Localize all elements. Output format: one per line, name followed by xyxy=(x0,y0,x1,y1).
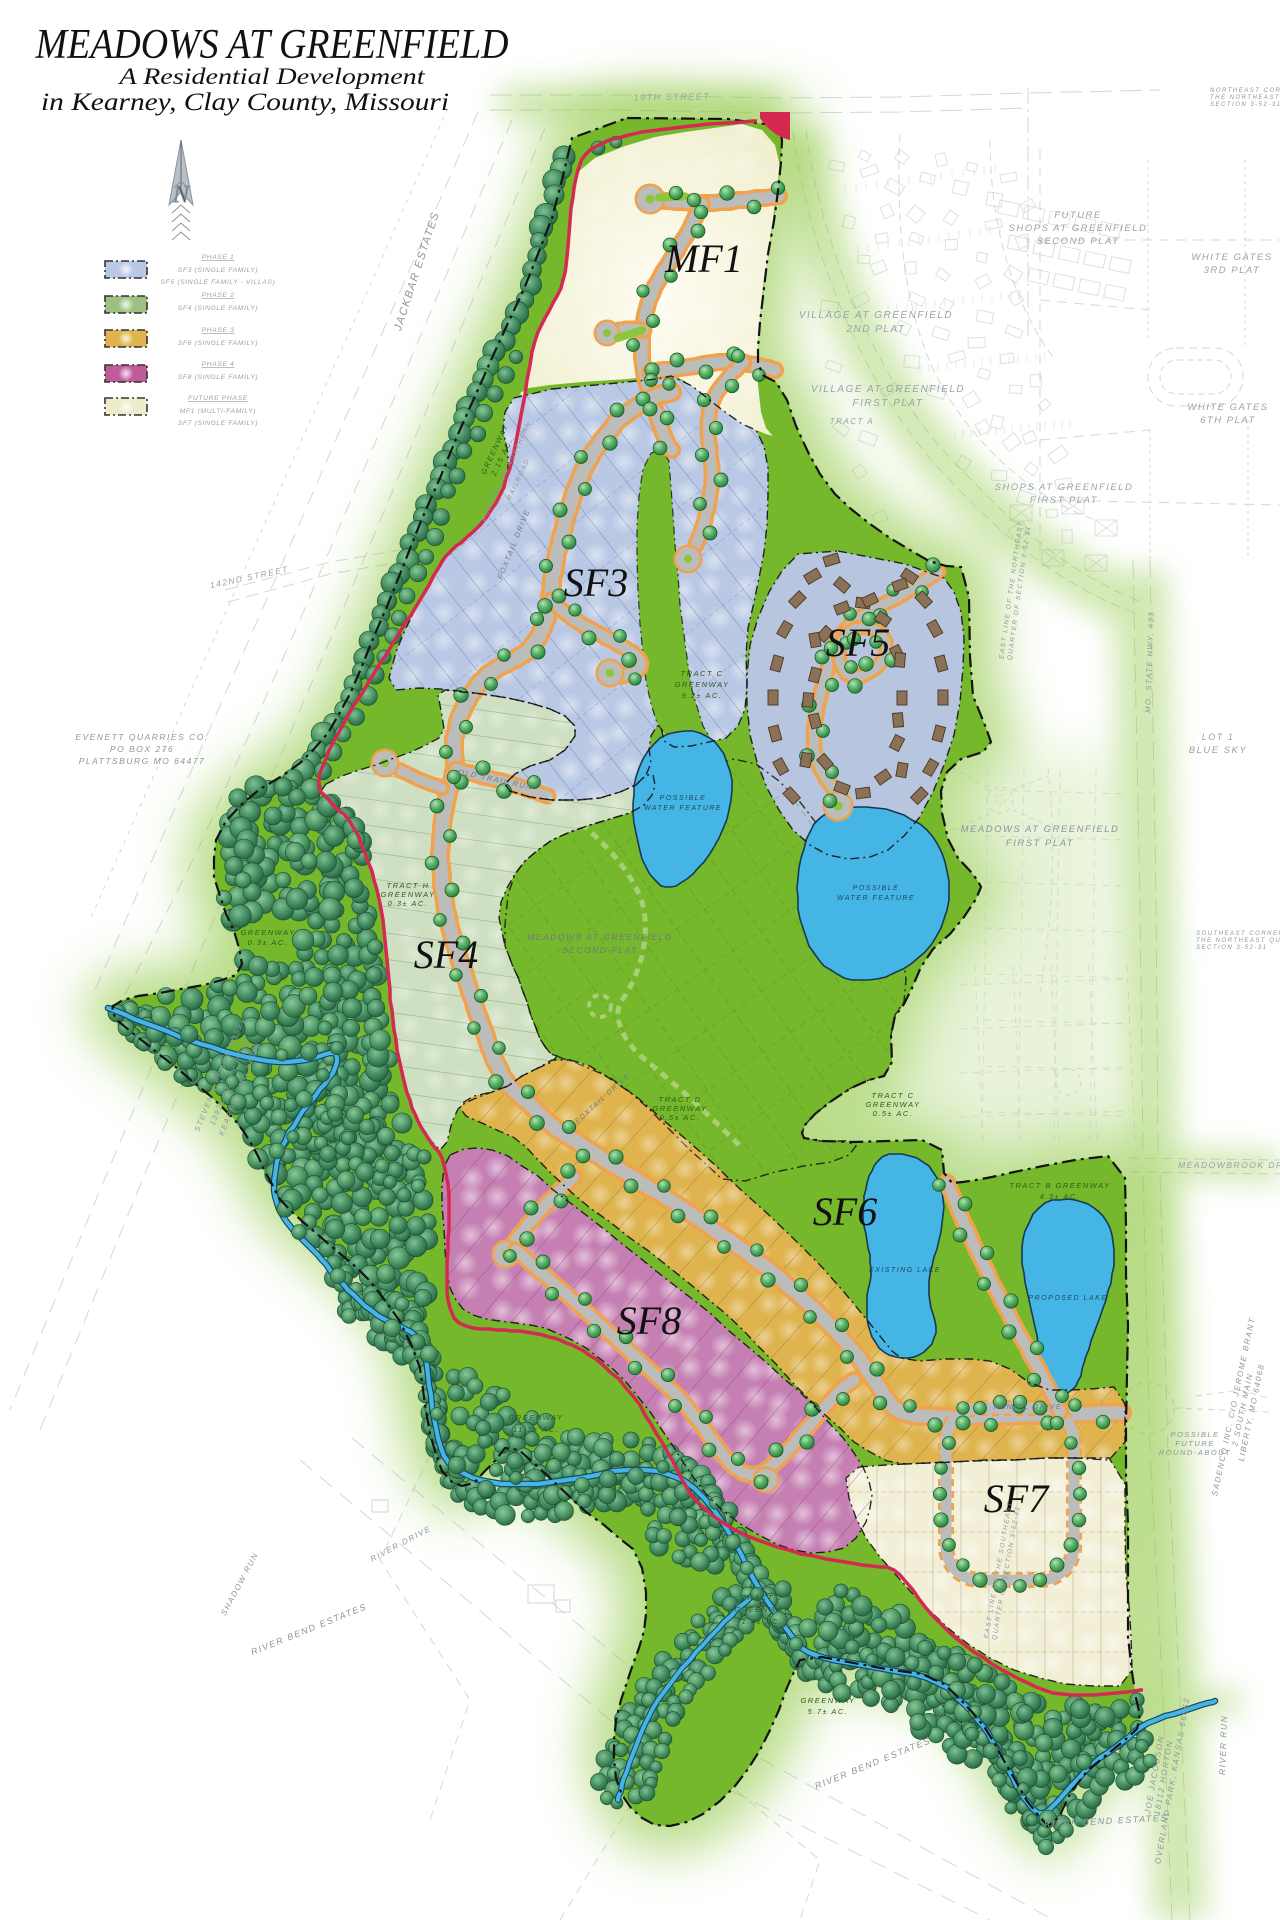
svg-text:EXISTING LAKE: EXISTING LAKE xyxy=(869,1267,941,1274)
svg-text:19TH STREET: 19TH STREET xyxy=(634,91,711,102)
svg-text:SF5 (SINGLE FAMILY - VILLAS): SF5 (SINGLE FAMILY - VILLAS) xyxy=(161,279,276,286)
svg-text:PLATTSBURG MO 64477: PLATTSBURG MO 64477 xyxy=(79,756,206,766)
svg-text:GREENWAY: GREENWAY xyxy=(652,1104,707,1113)
svg-text:2ND PLAT: 2ND PLAT xyxy=(845,324,905,335)
svg-text:SF3 (SINGLE FAMILY): SF3 (SINGLE FAMILY) xyxy=(178,267,259,274)
svg-text:SF4 (SINGLE FAMILY): SF4 (SINGLE FAMILY) xyxy=(178,305,259,312)
svg-text:FUTURE PHASE: FUTURE PHASE xyxy=(188,395,248,402)
svg-text:GREENWAY: GREENWAY xyxy=(734,1605,789,1614)
svg-text:BLUE SKY: BLUE SKY xyxy=(1189,745,1247,756)
svg-text:SHOPS AT GREENFIELD: SHOPS AT GREENFIELD xyxy=(995,482,1134,493)
svg-text:POSSIBLE: POSSIBLE xyxy=(660,795,707,802)
svg-text:TRACT C: TRACT C xyxy=(872,1091,915,1100)
svg-text:PO BOX 276: PO BOX 276 xyxy=(110,744,174,754)
svg-text:ROUND-ABOUT: ROUND-ABOUT xyxy=(1159,1448,1231,1457)
svg-text:RIVER RUN: RIVER RUN xyxy=(1217,1715,1229,1776)
svg-text:SF7 (SINGLE FAMILY): SF7 (SINGLE FAMILY) xyxy=(178,420,259,427)
svg-text:FIRST PLAT: FIRST PLAT xyxy=(853,398,924,409)
svg-text:11.2± AC.: 11.2± AC. xyxy=(513,1425,559,1434)
svg-text:SECTION 3-52-31: SECTION 3-52-31 xyxy=(1196,945,1268,951)
svg-text:GREENWAY: GREENWAY xyxy=(800,1696,855,1705)
svg-text:TRACT C: TRACT C xyxy=(681,669,724,678)
svg-text:GREENWAY: GREENWAY xyxy=(865,1100,920,1109)
svg-text:RENTAL DRIVE: RENTAL DRIVE xyxy=(994,1404,1062,1411)
svg-text:LOT 1: LOT 1 xyxy=(1202,732,1235,742)
svg-text:0.3± AC.: 0.3± AC. xyxy=(388,899,429,908)
svg-text:GREENWAY: GREENWAY xyxy=(240,928,295,937)
svg-text:FUTURE: FUTURE xyxy=(1054,210,1102,221)
svg-text:THE NORTHEAST QUARTER: THE NORTHEAST QUARTER xyxy=(1196,938,1280,944)
svg-text:SF8 (SINGLE FAMILY): SF8 (SINGLE FAMILY) xyxy=(178,374,259,381)
svg-text:FIRST PLAT: FIRST PLAT xyxy=(1006,838,1074,849)
svg-text:FUTURE: FUTURE xyxy=(1175,1439,1214,1448)
svg-text:WATER FEATURE: WATER FEATURE xyxy=(837,895,915,902)
svg-text:in Kearney, Clay County, Misso: in Kearney, Clay County, Missouri xyxy=(41,89,449,116)
svg-text:SOUTHEAST CORNER OF: SOUTHEAST CORNER OF xyxy=(1196,931,1280,937)
svg-text:SF8: SF8 xyxy=(617,1298,681,1343)
svg-text:PHASE 2: PHASE 2 xyxy=(202,292,235,299)
svg-text:THE NORTHEAST QUARTER: THE NORTHEAST QUARTER xyxy=(1210,95,1280,101)
svg-text:0.3± AC.: 0.3± AC. xyxy=(248,938,289,947)
svg-text:TRACT B GREENWAY: TRACT B GREENWAY xyxy=(1009,1181,1110,1190)
svg-text:TRACT J: TRACT J xyxy=(741,1593,782,1602)
svg-text:6TH PLAT: 6TH PLAT xyxy=(1200,415,1256,426)
svg-text:POSSIBLE: POSSIBLE xyxy=(853,885,900,892)
svg-text:0.5± AC.: 0.5± AC. xyxy=(660,1113,701,1122)
svg-text:SECOND PLAT: SECOND PLAT xyxy=(562,945,638,955)
svg-text:SECTION 3-52-31: SECTION 3-52-31 xyxy=(1210,102,1280,108)
svg-text:SF6: SF6 xyxy=(813,1189,877,1234)
svg-text:POSSIBLE: POSSIBLE xyxy=(1170,1430,1219,1439)
svg-text:MF1 (MULTI-FAMILY): MF1 (MULTI-FAMILY) xyxy=(180,408,256,415)
svg-text:A Residential Development: A Residential Development xyxy=(117,64,425,89)
svg-text:TRACT H: TRACT H xyxy=(387,881,430,890)
svg-text:NORTHEAST CORNER OF: NORTHEAST CORNER OF xyxy=(1210,88,1280,94)
svg-text:1.4± AC.: 1.4± AC. xyxy=(742,1617,783,1626)
svg-text:SF4: SF4 xyxy=(414,932,478,977)
svg-text:5.7± AC.: 5.7± AC. xyxy=(808,1707,849,1716)
svg-text:FIRST PLAT: FIRST PLAT xyxy=(1030,495,1098,506)
svg-text:SF3: SF3 xyxy=(564,560,628,605)
svg-text:SF5: SF5 xyxy=(826,620,890,665)
svg-text:MEADOWS AT GREENFIELD: MEADOWS AT GREENFIELD xyxy=(527,932,672,942)
svg-text:SHOPS AT GREENFIELD: SHOPS AT GREENFIELD xyxy=(1009,223,1148,234)
svg-text:GREENWAY: GREENWAY xyxy=(380,890,435,899)
svg-text:VILLAGE AT GREENFIELD: VILLAGE AT GREENFIELD xyxy=(799,310,953,321)
svg-text:PHASE 4: PHASE 4 xyxy=(202,361,235,368)
svg-text:MEADOWS AT GREENFIELD: MEADOWS AT GREENFIELD xyxy=(961,824,1120,835)
svg-text:SECOND PLAT: SECOND PLAT xyxy=(1037,236,1120,247)
svg-text:GREENWAY: GREENWAY xyxy=(674,680,729,689)
svg-text:MF1: MF1 xyxy=(664,236,743,281)
svg-text:WHITE GATES: WHITE GATES xyxy=(1187,402,1268,413)
svg-text:0.5± AC.: 0.5± AC. xyxy=(873,1109,914,1118)
svg-text:PHASE 1: PHASE 1 xyxy=(202,254,235,261)
svg-text:3RD PLAT: 3RD PLAT xyxy=(1204,265,1261,276)
svg-text:PHASE 3: PHASE 3 xyxy=(202,327,235,334)
svg-text:VILLAGE AT GREENFIELD: VILLAGE AT GREENFIELD xyxy=(811,384,965,395)
svg-text:4.3± AC.: 4.3± AC. xyxy=(1040,1192,1081,1201)
svg-text:MEADOWS AT GREENFIELD: MEADOWS AT GREENFIELD xyxy=(35,22,509,68)
svg-text:GREENWAY: GREENWAY xyxy=(508,1413,563,1422)
svg-text:TRACT D: TRACT D xyxy=(659,1095,702,1104)
svg-text:EVENETT QUARRIES CO.: EVENETT QUARRIES CO. xyxy=(75,732,208,742)
svg-text:PROPOSED LAKE: PROPOSED LAKE xyxy=(1028,1295,1107,1302)
svg-text:WHITE GATES: WHITE GATES xyxy=(1191,252,1272,263)
svg-text:TRACT A: TRACT A xyxy=(830,417,874,426)
svg-text:WATER FEATURE: WATER FEATURE xyxy=(644,805,722,812)
svg-text:N: N xyxy=(172,182,191,208)
svg-text:9.2± AC.: 9.2± AC. xyxy=(682,691,723,700)
svg-text:MEADOWBROOK DRIVE: MEADOWBROOK DRIVE xyxy=(1178,1160,1280,1170)
svg-text:SF6 (SINGLE FAMILY): SF6 (SINGLE FAMILY) xyxy=(178,340,259,347)
